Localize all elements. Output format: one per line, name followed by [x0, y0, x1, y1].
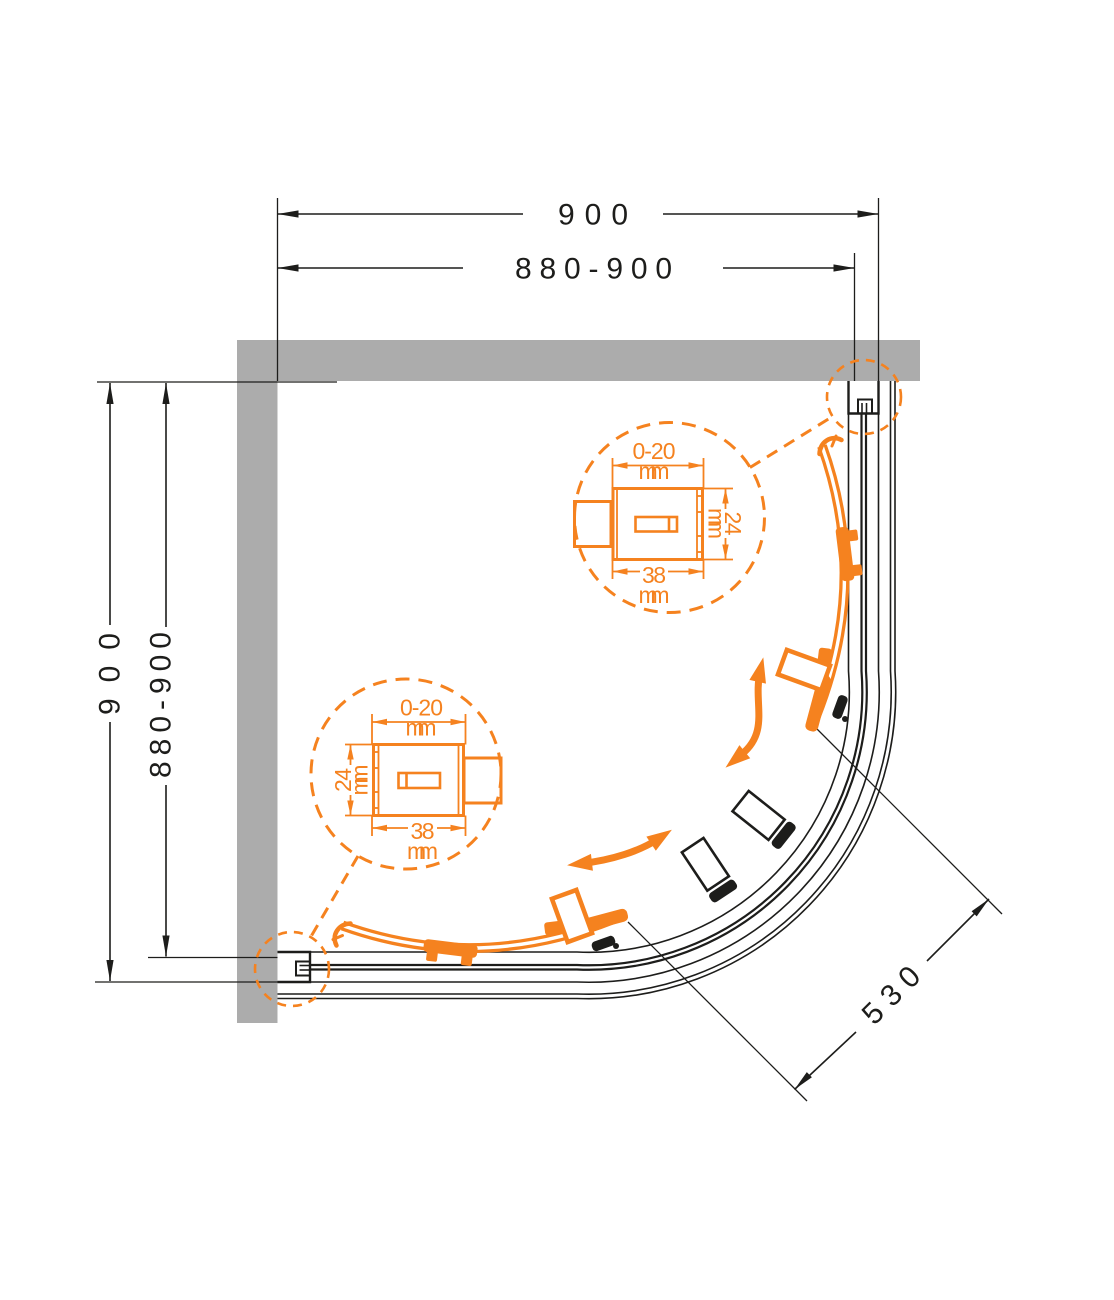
detail-callout-top: 0-20 mm 38 mm 24 mm: [575, 417, 833, 613]
profile-body-bottom: [374, 745, 464, 816]
profile-slot-bottom: [399, 773, 441, 788]
detail-bottom-depth-unit: mm: [347, 765, 373, 796]
dim-label-left-overall: 900: [94, 633, 127, 715]
technical-drawing-canvas: 900 880-900 900 880-900 530: [0, 0, 1114, 1300]
closed-handle-lower: [682, 838, 729, 891]
profile-wall-leg-bottom: [464, 758, 501, 803]
wall-profile-bottom-left: [278, 952, 311, 982]
dimension-left-adjustable: 880-900: [145, 383, 178, 957]
door-rollers-black: [591, 694, 849, 952]
callout-connector-top: [750, 417, 833, 468]
door-top-roller-bracket: [835, 525, 863, 581]
dim-label-entry-diagonal: 530: [856, 960, 927, 1031]
dim-label-top-adjustable: 880-900: [515, 253, 672, 286]
dimension-left-overall: 900: [94, 383, 127, 981]
slide-arrow-bottom: [582, 839, 658, 864]
wall-top: [237, 340, 920, 381]
dim-label-top-overall: 900: [558, 199, 628, 232]
closed-handle-upper: [733, 791, 785, 840]
dim-label-left-adjustable: 880-900: [145, 632, 178, 778]
detail-callout-bottom: 0-20 mm 38 mm 24 mm: [311, 679, 501, 937]
dimension-top-overall: 900: [278, 199, 879, 232]
fixed-panel-and-rail-curves: [278, 381, 896, 999]
sliding-door-top: [778, 436, 863, 733]
door-bottom-roller-bracket: [422, 939, 478, 967]
profile-wall-leg-top: [575, 502, 612, 547]
detail-top-depth-unit: mm: [704, 508, 730, 539]
dimension-entry-diagonal: 530: [792, 896, 992, 1092]
profile-slot-top: [636, 517, 678, 532]
slide-arrow-top: [742, 672, 760, 754]
sliding-door-bottom: [333, 890, 629, 967]
dimension-top-adjustable: 880-900: [278, 253, 855, 286]
detail-top-range-unit: mm: [639, 458, 670, 484]
slide-direction-arrows: [566, 655, 771, 873]
detail-top-width-unit: mm: [639, 582, 670, 608]
shower-enclosure-plan-drawing: 900 880-900 900 880-900 530: [0, 0, 1114, 1300]
wall-profile-top-right: [849, 381, 879, 414]
detail-bottom-range-unit: mm: [406, 715, 437, 741]
wall-left: [237, 340, 278, 1023]
detail-bottom-width-unit: mm: [407, 838, 438, 864]
profile-body-top: [613, 489, 703, 560]
